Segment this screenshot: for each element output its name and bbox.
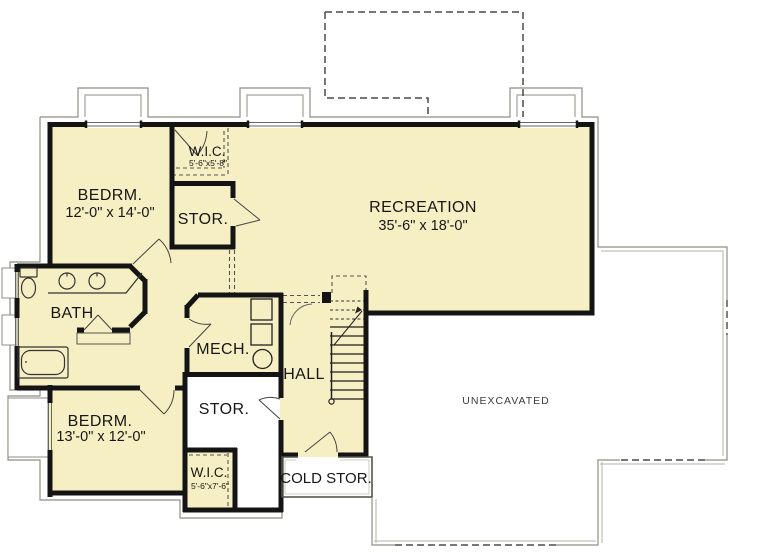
stair-wall-stub bbox=[322, 292, 331, 303]
bedroom2-label: BEDRM. bbox=[68, 413, 133, 430]
bedroom2-window-well bbox=[8, 398, 48, 457]
stor1-label: STOR. bbox=[178, 211, 229, 228]
bath-label: BATH bbox=[50, 305, 93, 322]
floor-bath-wing bbox=[15, 265, 185, 388]
recreation-dims: 35'-6" x 18'-0" bbox=[378, 218, 467, 234]
stor2-label: STOR. bbox=[199, 401, 250, 418]
cold-storage-label: COLD STOR. bbox=[280, 470, 371, 487]
wic1-dims: 5'-6"x5'-8" bbox=[189, 158, 227, 168]
wic1-label: W.I.C. bbox=[189, 144, 226, 159]
unexcavated-label: UNEXCAVATED bbox=[462, 395, 549, 407]
mech-label: MECH. bbox=[196, 341, 250, 358]
bedroom1-dims: 12'-0" x 14'-0" bbox=[65, 205, 154, 221]
wic2-dims: 5'-6"x7'-6" bbox=[191, 481, 229, 491]
wic2-label: W.I.C. bbox=[191, 465, 228, 480]
floor-hall bbox=[278, 310, 368, 457]
bedroom1-label: BEDRM. bbox=[78, 187, 143, 204]
floor-wic2 bbox=[183, 448, 235, 512]
floor-mech bbox=[183, 290, 282, 375]
bedroom2-dims: 13'-0" x 12'-0" bbox=[56, 429, 145, 445]
recreation-label: RECREATION bbox=[369, 199, 477, 216]
floor-plan-canvas: BEDRM. 12'-0" x 14'-0" W.I.C. 5'-6"x5'-8… bbox=[0, 0, 775, 556]
bath-window-well-1 bbox=[2, 268, 17, 298]
hall-label: HALL bbox=[283, 366, 325, 383]
bath-window-well-2 bbox=[2, 315, 17, 345]
floor-plan: BEDRM. 12'-0" x 14'-0" W.I.C. 5'-6"x5'-8… bbox=[0, 0, 775, 556]
